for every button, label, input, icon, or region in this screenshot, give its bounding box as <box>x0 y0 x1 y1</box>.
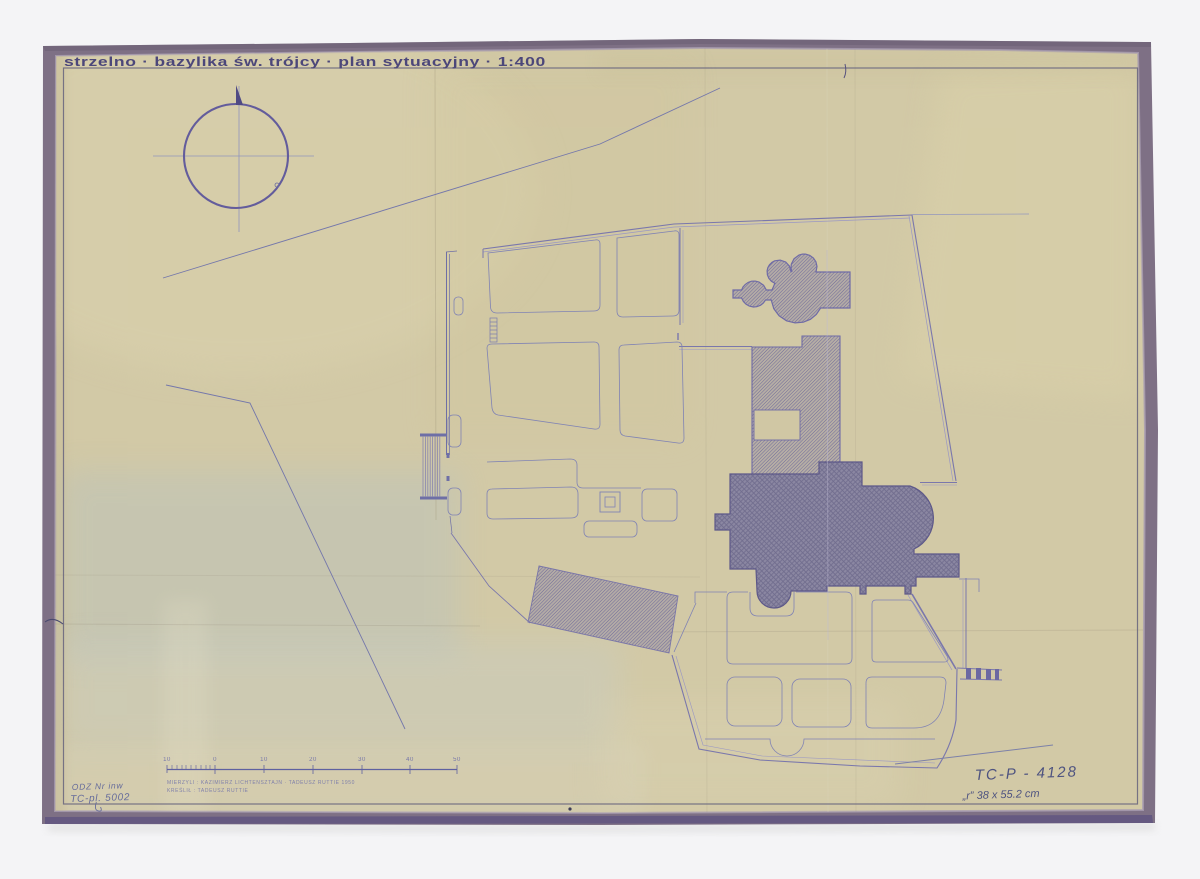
svg-text:20: 20 <box>309 757 317 763</box>
svg-text:0: 0 <box>213 757 217 763</box>
svg-text:30: 30 <box>358 757 366 763</box>
svg-text:ODZ Nr inw: ODZ Nr inw <box>72 780 124 792</box>
svg-text:MIERZYLI : KAZIMIERZ LICHTENSZ: MIERZYLI : KAZIMIERZ LICHTENSZTAJN · TAD… <box>167 780 355 786</box>
svg-text:10: 10 <box>260 757 268 763</box>
svg-text:strzelno · bazylika św. trójcy: strzelno · bazylika św. trójcy · plan sy… <box>64 54 546 69</box>
svg-text:40: 40 <box>406 757 414 763</box>
svg-text:KREŚLIŁ : TADEUSZ RUTTIE: KREŚLIŁ : TADEUSZ RUTTIE <box>167 786 249 794</box>
svg-text:10: 10 <box>163 757 171 763</box>
svg-text:TC-P - 4128: TC-P - 4128 <box>975 763 1079 784</box>
svg-text:TC-pl. 5002: TC-pl. 5002 <box>70 792 130 805</box>
svg-text:50: 50 <box>453 757 461 763</box>
